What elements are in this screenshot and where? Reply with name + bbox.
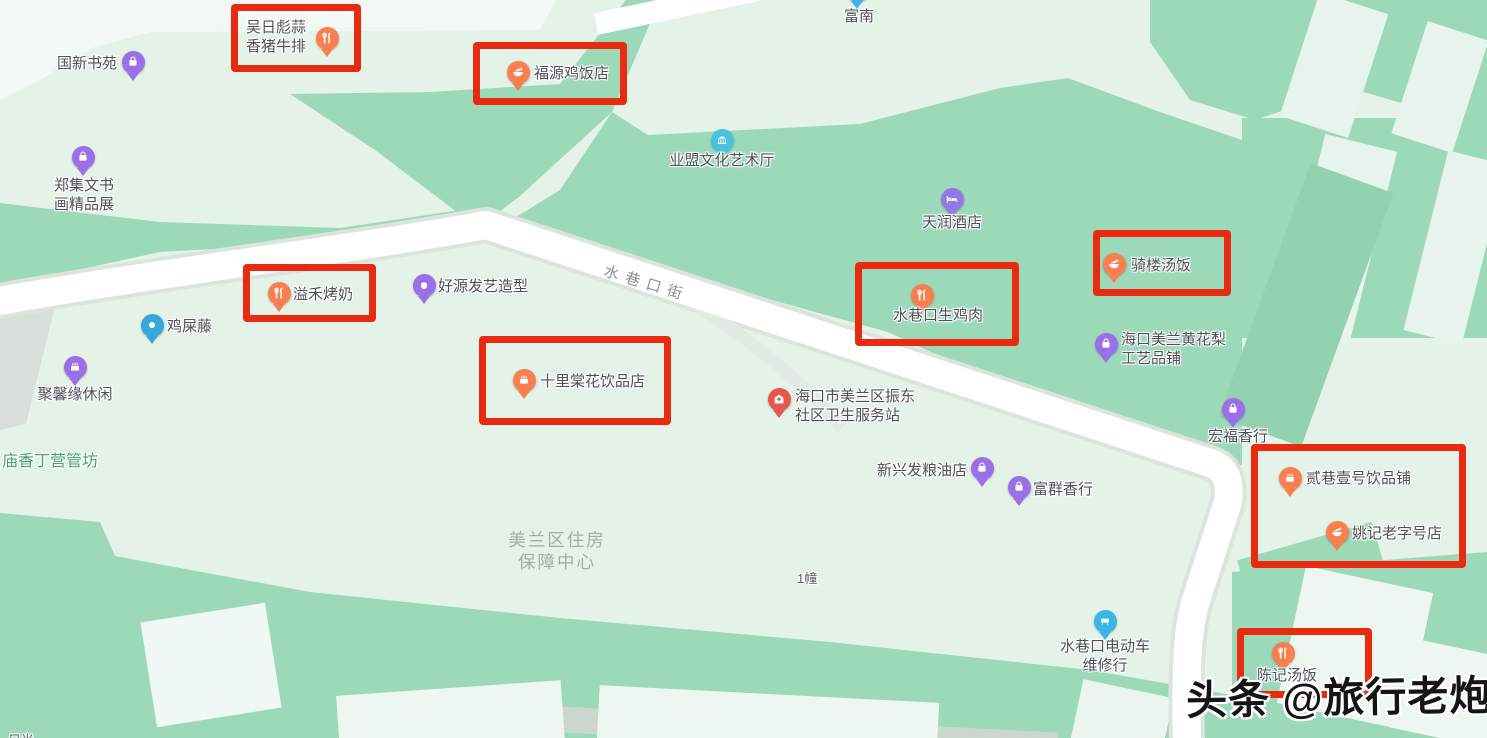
corner-partial-label: 日尚 <box>8 731 34 738</box>
yemeng-art-hall-pin[interactable] <box>711 129 734 152</box>
miaoxiang-dingying-label: 庙香丁营管坊 <box>2 452 98 471</box>
bag-icon <box>975 461 989 475</box>
fuqun-incense-label[interactable]: 富群香行 <box>1033 480 1093 499</box>
bag-icon <box>126 55 140 69</box>
zhengji-calligraphy-pin[interactable] <box>72 146 95 169</box>
cross-house-icon <box>772 392 786 406</box>
face-icon <box>417 278 431 292</box>
huanghuali-craft-shop-label[interactable]: 海口美兰黄花梨 工艺品铺 <box>1121 330 1226 368</box>
shilitanghua-drinks-highlight-box <box>479 336 671 425</box>
haoyuan-hair-salon-label[interactable]: 好源发艺造型 <box>438 277 528 296</box>
haoyuan-hair-salon-pin[interactable] <box>413 274 436 297</box>
watermark: 头条 @旅行老炮 <box>1185 661 1487 726</box>
juxinyuan-leisure-pin[interactable] <box>64 356 87 379</box>
shuixiangkou-raw-chicken-highlight-box <box>855 262 1019 346</box>
hongfu-incense-pin[interactable] <box>1222 398 1245 421</box>
map-canvas[interactable]: 国新书苑吴日彪蒜 香猪牛排福源鸡饭店富南业盟文化艺术厅郑集文书 画精品展天润酒店… <box>0 0 1487 738</box>
yihe-roasted-milk-highlight-box <box>243 264 376 322</box>
meilan-housing-center-label: 美兰区住房 保障中心 <box>508 529 606 573</box>
huanghuali-craft-shop-pin[interactable] <box>1095 333 1118 356</box>
yemeng-art-hall-label[interactable]: 业盟文化艺术厅 <box>669 151 774 170</box>
scooter-icon <box>1098 614 1112 628</box>
bed-icon <box>945 192 959 206</box>
funan-label[interactable]: 富南 <box>844 7 874 26</box>
tianrun-hotel-pin[interactable] <box>941 188 964 211</box>
dot-icon <box>145 318 159 332</box>
bag-icon <box>1226 402 1240 416</box>
guoxin-shuyuan-label[interactable]: 国新书苑 <box>57 54 117 73</box>
bag-icon <box>1012 480 1026 494</box>
zhengji-calligraphy-label[interactable]: 郑集文书 画精品展 <box>54 176 114 214</box>
fuqun-incense-pin[interactable] <box>1008 476 1031 499</box>
ebike-repair-pin[interactable] <box>1094 610 1117 633</box>
juxinyuan-leisure-label[interactable]: 聚馨缘休闲 <box>37 385 112 404</box>
zhendong-health-station-label[interactable]: 海口市美兰区振东 社区卫生服务站 <box>795 387 915 425</box>
ebike-repair-label[interactable]: 水巷口电动车 维修行 <box>1060 637 1150 675</box>
xinxingfa-grain-oil-label[interactable]: 新兴发粮油店 <box>877 461 967 480</box>
xinxingfa-grain-oil-pin[interactable] <box>971 457 994 480</box>
wuribiao-steak-highlight-box <box>231 4 361 72</box>
zhendong-health-station-pin[interactable] <box>768 388 791 411</box>
building-no-1-label: 1幢 <box>797 569 817 588</box>
top-road <box>596 0 758 24</box>
qilou-soup-rice-highlight-box <box>1093 230 1231 296</box>
guoxin-shuyuan-pin[interactable] <box>122 51 145 74</box>
building-icon <box>715 133 729 147</box>
tianrun-hotel-label[interactable]: 天润酒店 <box>922 213 982 232</box>
fuyuan-chicken-rice-highlight-box <box>473 42 627 105</box>
cake-icon <box>68 360 82 374</box>
bag-icon <box>76 150 90 164</box>
jishiteng-pin[interactable] <box>141 314 164 337</box>
bag-icon <box>1099 337 1113 351</box>
jishiteng-label[interactable]: 鸡屎藤 <box>167 317 212 336</box>
erxiang-yaoji-combo-highlight-box <box>1251 444 1466 568</box>
